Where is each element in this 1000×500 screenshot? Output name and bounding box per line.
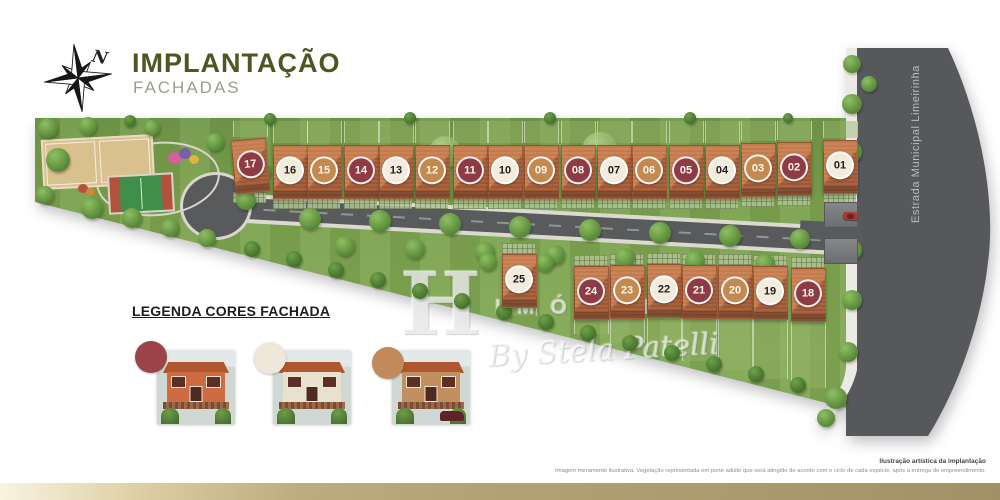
facade-color-swatch-3: [372, 347, 404, 379]
house-backyard: [273, 121, 308, 143]
house-front-shadow: [683, 311, 716, 318]
tree: [264, 113, 276, 125]
tree: [649, 222, 671, 244]
house-front-shadow: [670, 191, 703, 198]
boundary-bush: [622, 335, 638, 351]
tree: [544, 112, 556, 124]
house-lot-11: 11: [453, 145, 488, 199]
lot-number-badge: 16: [276, 156, 304, 184]
front-hedge: [415, 198, 448, 209]
disclaimer-note: Imagem meramente ilustrativa. Vegetação …: [555, 468, 986, 474]
house-lot-14: 14: [344, 145, 379, 199]
lot-number-badge: 21: [685, 276, 713, 304]
house-backyard: [233, 121, 268, 137]
lot-number-badge: 06: [635, 156, 663, 184]
house-backyard: [632, 121, 667, 143]
lot-number-badge: 01: [826, 151, 854, 179]
thumb-door: [190, 386, 203, 402]
lot-number-badge: 04: [708, 156, 736, 184]
lot-number-badge: 03: [744, 154, 772, 182]
house-lot-01: 01: [823, 140, 858, 194]
house-lot-12: 12: [415, 145, 450, 199]
front-hedge: [502, 243, 535, 254]
house-front-shadow: [503, 300, 536, 307]
lot-number-badge: 08: [564, 156, 592, 184]
facade-photo-1: [157, 350, 235, 424]
house-lot-10: 10: [488, 145, 523, 199]
footer-gold-bar: [0, 483, 1000, 500]
implantation-brochure-page: N IMPLANTAÇÃO FACHADAS Estrada Municipal…: [0, 0, 1000, 500]
house-front-shadow: [525, 191, 558, 198]
tree: [684, 112, 696, 124]
thumb-bush: [277, 408, 295, 424]
legend-title: LEGENDA CORES FACHADA: [132, 303, 330, 319]
house-backyard: [524, 121, 559, 143]
lot-number-badge: 13: [382, 156, 410, 184]
tree: [161, 219, 179, 237]
house-backyard: [718, 318, 753, 370]
house-lot-20: 20: [718, 265, 753, 319]
front-hedge: [647, 253, 680, 264]
tree: [206, 133, 224, 151]
house-front-shadow: [235, 183, 268, 193]
thumb-window: [206, 376, 221, 388]
tree: [439, 213, 461, 235]
front-hedge: [453, 198, 486, 209]
house-lot-07: 07: [597, 145, 632, 199]
front-hedge: [574, 255, 607, 266]
boundary-bush: [790, 377, 806, 393]
lot-number-badge: 14: [347, 156, 375, 184]
house-lot-25: 25: [502, 254, 537, 308]
tree: [81, 197, 103, 219]
street-name-label: Estrada Municipal Limeirinha: [910, 44, 922, 244]
house-backyard: [705, 121, 740, 143]
house-front-shadow: [706, 191, 739, 198]
house-lot-08: 08: [561, 145, 596, 199]
boundary-bush: [538, 314, 554, 330]
house-lot-06: 06: [632, 145, 667, 199]
house-front-shadow: [308, 191, 341, 198]
lot-number-badge: 19: [756, 277, 784, 305]
car: [843, 212, 858, 221]
house-front-shadow: [345, 191, 378, 198]
house-front-shadow: [416, 191, 449, 198]
house-lot-02: 02: [777, 142, 812, 196]
house-lot-09: 09: [524, 145, 559, 199]
front-hedge: [705, 198, 738, 209]
lot-number-badge: 07: [600, 156, 628, 184]
tree: [404, 112, 416, 124]
playground: [166, 146, 202, 170]
front-hedge: [777, 195, 810, 206]
house-lot-15: 15: [307, 145, 342, 199]
tree: [842, 94, 862, 114]
tree: [843, 55, 861, 73]
house-lot-18: 18: [791, 268, 826, 322]
boundary-bush: [244, 241, 260, 257]
tree: [46, 148, 70, 172]
house-backyard: [488, 121, 523, 143]
tree: [817, 409, 835, 427]
facade-color-swatch-1: [135, 341, 167, 373]
thumb-wall: [402, 372, 460, 402]
front-hedge: [379, 198, 412, 209]
house-backyard: [307, 121, 342, 143]
boundary-bush: [580, 325, 596, 341]
tree: [335, 236, 355, 256]
tree: [790, 229, 810, 249]
thumb-bush: [161, 408, 179, 424]
house-backyard: [669, 121, 704, 143]
tree: [783, 113, 793, 123]
house-backyard: [777, 121, 812, 140]
tree: [38, 118, 58, 138]
thumb-window: [406, 376, 421, 388]
playground-small: [76, 182, 100, 198]
lot-number-badge: 02: [780, 153, 808, 181]
house-lot-03: 03: [741, 143, 776, 197]
tree: [79, 117, 97, 135]
lot-number-badge: 24: [577, 277, 605, 305]
house-front-shadow: [611, 311, 644, 318]
artistic-credit-note: Ilustração artística da implantação: [879, 458, 986, 465]
gatehouse-south: [824, 238, 858, 264]
lot-number-badge: 10: [491, 156, 519, 184]
thumb-car: [440, 411, 464, 421]
house-front-shadow: [575, 312, 608, 319]
house-front-shadow: [754, 312, 787, 319]
front-hedge: [597, 198, 630, 209]
front-hedge: [488, 198, 521, 209]
tree: [838, 342, 858, 362]
lot-number-badge: 15: [310, 156, 338, 184]
tree: [144, 120, 160, 136]
thumb-bush: [331, 408, 347, 424]
house-lot-16: 16: [273, 145, 308, 199]
thumb-wall: [167, 372, 225, 402]
thumb-door: [306, 386, 319, 402]
thumb-window: [171, 376, 186, 388]
lot-number-badge: 12: [418, 156, 446, 184]
lot-number-badge: 17: [235, 149, 265, 179]
front-hedge: [273, 198, 306, 209]
house-front-shadow: [274, 191, 307, 198]
thumb-door: [425, 386, 438, 402]
house-front-shadow: [824, 186, 857, 193]
house-front-shadow: [489, 191, 522, 198]
lot-number-badge: 20: [721, 276, 749, 304]
house-backyard: [453, 121, 488, 143]
house-front-shadow: [633, 191, 666, 198]
lot-number-badge: 25: [505, 265, 533, 293]
house-front-shadow: [454, 191, 487, 198]
tree: [842, 290, 862, 310]
house-front-shadow: [380, 191, 413, 198]
house-backyard: [379, 121, 414, 143]
tree: [825, 387, 847, 409]
house-lot-23: 23: [610, 265, 645, 319]
house-lot-17: 17: [230, 138, 270, 195]
tree: [536, 254, 554, 272]
house-front-shadow: [719, 311, 752, 318]
thumb-bush: [396, 408, 414, 424]
tree: [579, 219, 601, 241]
boundary-bush: [412, 283, 428, 299]
front-hedge: [561, 198, 594, 209]
thumb-window: [322, 376, 337, 388]
lot-number-badge: 09: [527, 156, 555, 184]
house-backyard: [741, 121, 776, 141]
house-backyard: [682, 318, 717, 361]
tree: [36, 186, 54, 204]
front-hedge: [791, 257, 824, 268]
house-backyard: [823, 121, 858, 138]
tree: [198, 229, 216, 247]
house-front-shadow: [648, 310, 681, 317]
house-front-shadow: [598, 191, 631, 198]
house-front-shadow: [562, 191, 595, 198]
tree: [124, 115, 136, 127]
tree: [369, 210, 391, 232]
house-lot-19: 19: [753, 266, 788, 320]
facade-color-swatch-2: [254, 342, 286, 374]
thumb-bush: [215, 408, 231, 424]
house-lot-13: 13: [379, 145, 414, 199]
lot-number-badge: 11: [456, 156, 484, 184]
lot-number-badge: 05: [672, 156, 700, 184]
boundary-bush: [328, 262, 344, 278]
sports-court: [107, 172, 175, 214]
tree: [719, 225, 741, 247]
house-backyard: [344, 121, 379, 143]
house-lot-22: 22: [647, 264, 682, 318]
tree: [479, 253, 497, 271]
house-front-shadow: [742, 189, 775, 196]
thumb-wall: [283, 372, 341, 402]
lot-number-badge: 22: [650, 275, 678, 303]
house-front-shadow: [778, 188, 811, 195]
house-lot-04: 04: [705, 145, 740, 199]
tree: [861, 76, 877, 92]
front-hedge: [718, 254, 751, 265]
front-hedge: [524, 198, 557, 209]
thumb-window: [287, 376, 302, 388]
front-hedge: [632, 198, 665, 209]
thumb-window: [441, 376, 456, 388]
front-hedge: [741, 196, 774, 207]
house-lot-21: 21: [682, 265, 717, 319]
house-front-shadow: [792, 314, 825, 321]
front-hedge: [344, 198, 377, 209]
lot-number-badge: 18: [794, 279, 822, 307]
tree: [405, 239, 425, 259]
house-lot-05: 05: [669, 145, 704, 199]
tree: [509, 216, 531, 238]
tree: [299, 208, 321, 230]
tree: [122, 208, 142, 228]
lot-number-badge: 23: [613, 276, 641, 304]
front-hedge: [669, 198, 702, 209]
boundary-bush: [706, 356, 722, 372]
house-lot-24: 24: [574, 266, 609, 320]
